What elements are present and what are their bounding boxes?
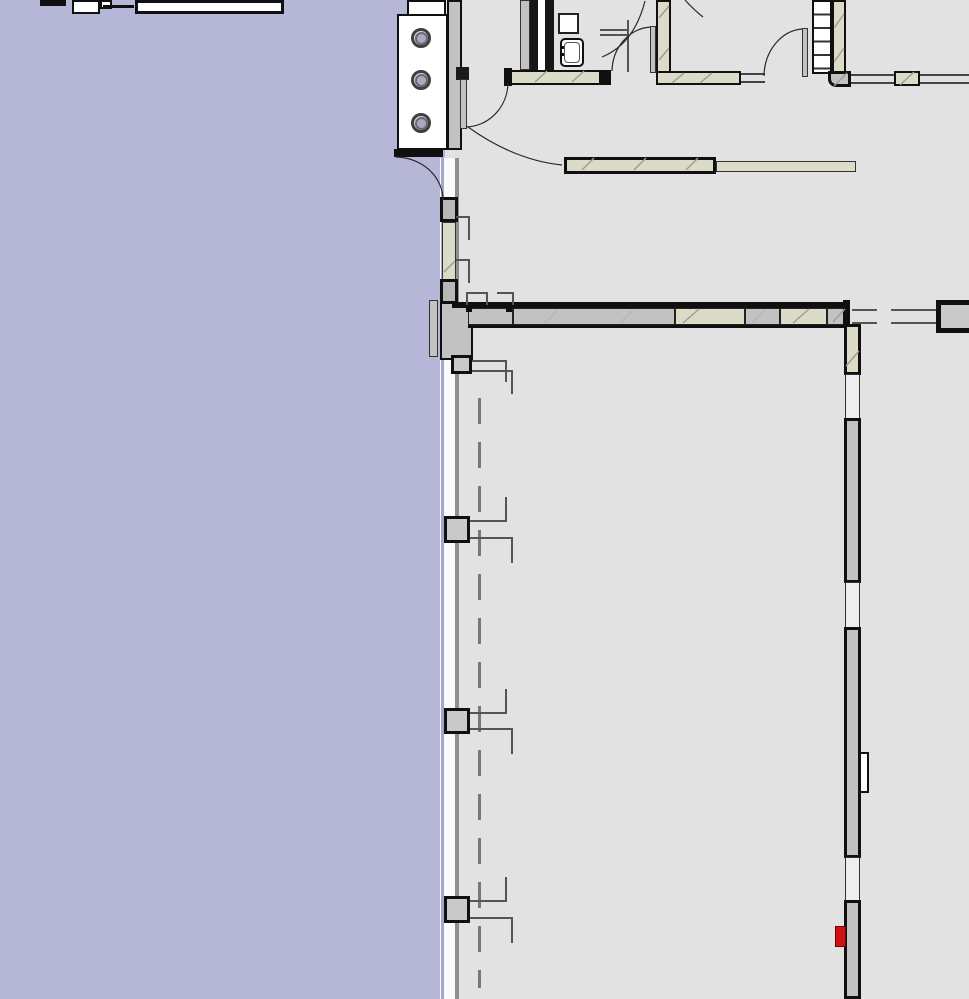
toilet-tap-dot (561, 53, 564, 56)
window-c-top-line (920, 74, 969, 76)
door-leaf-entry (460, 79, 467, 129)
right-wall-window (845, 857, 860, 901)
fixture-block-a (40, 0, 66, 6)
wall-block-east (894, 71, 920, 86)
pipe-fixture-1 (411, 28, 431, 48)
wall-ladder-east (832, 0, 846, 74)
far-window-line (891, 322, 938, 324)
connector-line (505, 689, 507, 714)
window-a-bottom-line (741, 81, 765, 83)
right-wall-gray-seg (844, 418, 861, 583)
connector-square-3 (444, 708, 470, 734)
wc-partition-b (545, 0, 554, 70)
connector-line (511, 728, 513, 754)
partition-light (716, 161, 856, 172)
toilet-inner-rim (564, 42, 580, 63)
fixture-block-b (72, 0, 100, 14)
fixture-shelf-line (103, 5, 134, 8)
wall-seg-box-north (440, 197, 458, 222)
wc-wall-cap-east (599, 70, 611, 85)
hinge-dot (506, 306, 512, 312)
main-wall-fill (780, 308, 827, 325)
connector-line (470, 520, 506, 522)
wall-seg-box-south (440, 279, 458, 304)
toilet-tap-dot (561, 46, 564, 49)
panel-tick (395, 82, 402, 85)
panel-tick (395, 137, 402, 140)
connector-line (511, 537, 513, 563)
main-wall-bottom-line (468, 325, 848, 328)
right-wall-window (845, 374, 860, 420)
wall-ne-horizontal (656, 71, 741, 85)
pilaster (429, 300, 438, 357)
far-window-line (852, 309, 877, 311)
window-b-top-line (851, 74, 895, 76)
window-c-bottom-line (920, 82, 969, 84)
connector-line (505, 497, 507, 522)
connector-line (470, 537, 512, 539)
hinge-dot (466, 306, 472, 312)
exterior-region-upper (0, 0, 445, 160)
partition-heavy (564, 157, 716, 174)
opening-mark-line (486, 292, 488, 305)
opening-mark-line (512, 292, 514, 305)
connector-line (470, 712, 506, 714)
counter-top (135, 0, 284, 14)
connector-line (472, 370, 511, 372)
door-header-bar (394, 149, 443, 157)
shelf-line-b (600, 34, 629, 36)
connector-line (511, 917, 513, 943)
connector-line (470, 917, 512, 919)
door-leaf-ne (802, 28, 808, 77)
wc-tick (515, 18, 520, 21)
far-wall-piece (936, 300, 969, 333)
opening-mark-line (466, 292, 488, 294)
exterior-region-lower (0, 158, 440, 999)
connector-line (470, 900, 506, 902)
pipe-fixture-3 (411, 113, 431, 133)
right-wall-gray-seg (844, 627, 861, 858)
pipe-fixture-2 (411, 70, 431, 90)
main-wall-fill (513, 308, 675, 325)
shelf-line-a (600, 29, 629, 31)
wc-wall-gray-strip (520, 0, 530, 70)
wc-wall-south (505, 70, 611, 85)
shelf-side-line (627, 20, 629, 72)
far-window-line (891, 309, 938, 311)
panel-tick (395, 96, 402, 99)
panel-tick (395, 51, 402, 54)
right-wall-gray-seg (844, 900, 861, 999)
wc-tick (515, 28, 520, 31)
opening-mark-line (466, 292, 468, 305)
wall-seg-middle (442, 222, 456, 280)
wc-wall-cap-west (504, 68, 512, 86)
door-handle-plate (859, 752, 869, 793)
stair-ladder (812, 0, 832, 74)
connector-square-1 (451, 355, 472, 374)
far-window-line (852, 322, 877, 324)
right-wall-beige-seg (844, 324, 861, 375)
connector-square-2 (444, 516, 470, 543)
wall-corner-ne (828, 71, 851, 87)
main-wall-fill (745, 308, 780, 325)
connector-line (470, 728, 512, 730)
wc-partition-gap (538, 0, 545, 70)
wc-tick (515, 8, 520, 11)
window-b-bottom-line (851, 82, 895, 84)
window-a-top-line (741, 73, 765, 75)
panel-tick (395, 37, 402, 40)
opening-mark-line (468, 259, 470, 283)
wall-ne-vertical (656, 0, 671, 75)
cistern-ledge (555, 34, 584, 37)
connector-square-4 (444, 896, 470, 923)
connector-line (505, 877, 507, 902)
panel-tick (395, 123, 402, 126)
cistern (558, 13, 579, 34)
main-wall-fill (675, 308, 745, 325)
floor-plan (0, 0, 969, 999)
connector-line (472, 360, 505, 362)
right-wall-window (845, 582, 860, 629)
alarm-marker (835, 926, 846, 947)
wc-partition-a (530, 0, 538, 70)
connector-line (511, 370, 513, 394)
opening-mark-line (468, 216, 470, 240)
